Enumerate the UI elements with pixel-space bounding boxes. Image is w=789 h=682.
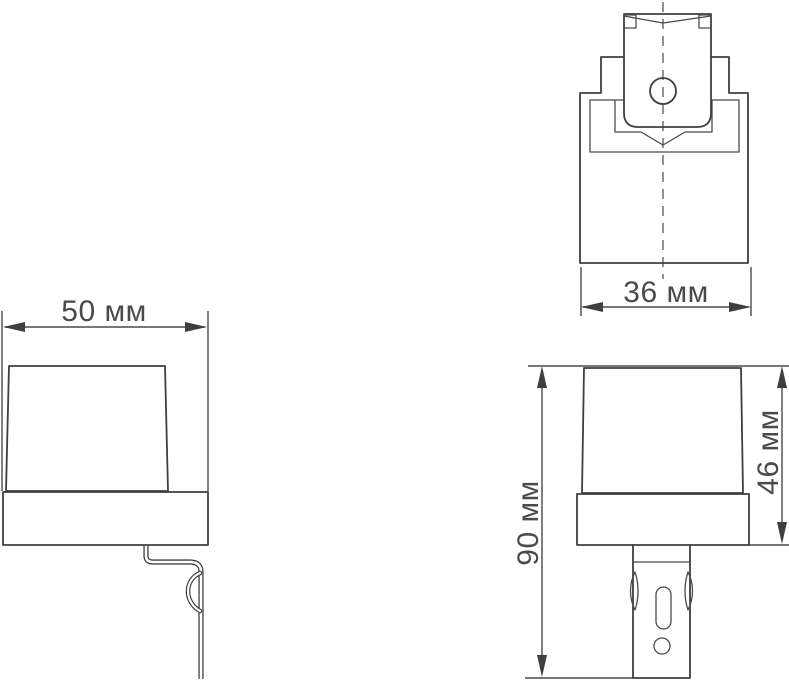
bracket-hole [654, 638, 670, 654]
technical-drawing-page: 36 мм 50 мм [0, 0, 789, 682]
bracket-outline [633, 545, 690, 678]
base-housing [577, 494, 749, 545]
dimension-total-height: 90 мм [512, 366, 547, 677]
photocell-dimension-drawing: 36 мм 50 мм [0, 0, 789, 682]
arrowhead-right [185, 322, 207, 332]
side-view-left: 50 мм [2, 295, 208, 679]
base-housing [3, 492, 208, 545]
sensor-dome [582, 368, 743, 493]
dimension-label-90mm: 90 мм [512, 480, 545, 565]
mounting-bracket [631, 545, 693, 678]
bracket-corner-tabs [624, 15, 711, 28]
arrowhead-left [3, 322, 25, 332]
arrowhead-down [777, 522, 787, 544]
side-view-right: 90 мм 46 мм [512, 366, 789, 678]
arrowhead-down [537, 655, 547, 677]
dimension-upper-body-height: 46 мм [752, 366, 787, 544]
housing-body-outline [580, 57, 748, 263]
dimension-label-50mm: 50 мм [61, 295, 146, 328]
clip-wire-outline [146, 546, 201, 679]
extension-lines [2, 311, 208, 491]
clip-wire-core [146, 546, 201, 679]
dimension-side-width: 50 мм [2, 295, 208, 491]
bracket-slot [656, 587, 671, 629]
bracket-clip-left [631, 572, 639, 610]
arrowhead-left [581, 302, 603, 312]
dimension-label-36mm: 36 мм [623, 276, 708, 309]
arrowhead-up [537, 366, 547, 388]
arrowhead-up [777, 366, 787, 388]
dimension-top-depth: 36 мм [581, 267, 751, 316]
bracket-top-rim [624, 16, 711, 23]
sensor-dome [6, 366, 168, 491]
dimension-label-46mm: 46 мм [752, 409, 785, 494]
arrowhead-right [729, 302, 751, 312]
mounting-bracket-outline [624, 14, 711, 127]
spring-clip-wire [146, 546, 201, 679]
bracket-clip-right [685, 572, 693, 610]
top-view: 36 мм [580, 2, 751, 316]
